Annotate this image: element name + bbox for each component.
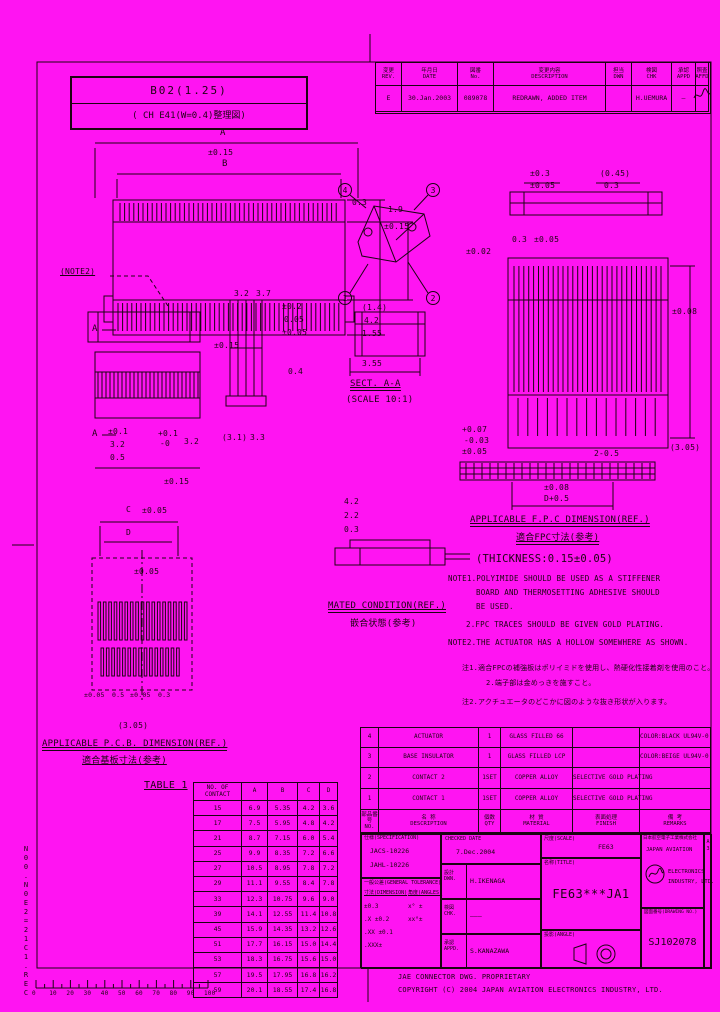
ruler-label: 30: [84, 991, 92, 997]
revision-header: 図番 No.: [458, 63, 494, 86]
drawing-number-value: SJ102078: [642, 937, 703, 948]
parts-cell: 1: [479, 728, 501, 748]
parts-cell: BASE INSULATOR: [379, 748, 479, 768]
parts-cell: 3: [361, 748, 379, 768]
dim-label: ±0.05: [130, 692, 151, 699]
table1-cell: 17.7: [242, 938, 268, 953]
table1-cell: 51: [194, 938, 242, 953]
revision-header: 年月日 DATE: [402, 63, 458, 86]
dim-label: C: [126, 506, 131, 514]
revision-value: —: [672, 86, 696, 112]
table1-cell: 7.8: [298, 862, 320, 877]
dim-label: +0.1: [158, 430, 178, 438]
parts-cell: COPPER ALLOY: [501, 768, 573, 789]
dim-label: (THICKNESS:0.15±0.05): [476, 554, 613, 565]
dim-label: 0.3: [604, 182, 619, 190]
table1-cell: 14.4: [320, 938, 338, 953]
dim-label: (3.05): [670, 444, 700, 452]
checked-date-label: CHECKED DATE: [445, 837, 481, 843]
revision-header: 照査 AFFD: [696, 63, 709, 86]
table1-cell: 7.8: [320, 877, 338, 892]
parts-cell: COLOR:BLACK UL94V-0: [640, 728, 711, 748]
table1-cell: 29: [194, 877, 242, 892]
ruler-label: 80: [170, 991, 178, 997]
dim-label: ±0.05: [530, 182, 555, 190]
dim-label: APPLICABLE P.C.B. DIMENSION(REF.): [42, 740, 227, 751]
table1-header: NO. OF CONTACT: [194, 783, 242, 801]
tolerance-box: 一般公差(GENERAL TOLERANCE) 寸法(DIMENSION) 角度…: [361, 878, 441, 969]
copyright-note: COPYRIGHT (C) 2004 JAPAN AVIATION ELECTR…: [398, 987, 663, 994]
tolerance-row: .X ±0.2xx°±: [364, 916, 440, 929]
dim-label: NOTE2.THE ACTUATOR HAS A HOLLOW SOMEWHER…: [448, 639, 688, 647]
dim-label: 3.2: [234, 290, 249, 298]
dim-label: 3.7: [256, 290, 271, 298]
parts-header: 個数 QTY: [479, 810, 501, 833]
table1-header: A: [242, 783, 268, 801]
table1-header: B: [268, 783, 298, 801]
table1-cell: 27: [194, 862, 242, 877]
contact-dimension-table: NO. OF CONTACTABCD156.95.354.23.6177.55.…: [193, 782, 338, 998]
table1-cell: 15: [194, 801, 242, 816]
dim-label: 1.55: [362, 330, 382, 338]
dim-label: 3.2: [184, 438, 199, 446]
table1-cell: 9.6: [298, 892, 320, 907]
table1-cell: 9.9: [242, 847, 268, 862]
table1-cell: 16.8: [298, 968, 320, 983]
parts-cell: [640, 789, 711, 810]
spec-value-1: JACS-10226: [370, 847, 409, 855]
parts-cell: 1SET: [479, 768, 501, 789]
approval-row: 設計 DWN.H.IKENAGA: [441, 864, 541, 899]
dim-label: 1.9: [388, 206, 403, 214]
dim-label: SECT. A-A: [350, 380, 401, 391]
approval-value: S.KANAZAWA: [470, 947, 509, 955]
table1-cell: 15.0: [320, 953, 338, 968]
third-angle-projection-icon: [570, 942, 626, 966]
table1-cell: 6.6: [320, 847, 338, 862]
table1-cell: 5.35: [268, 801, 298, 816]
dim-label: APPLICABLE F.P.C DIMENSION(REF.): [470, 516, 650, 527]
approval-label: 承認 APPD.: [444, 941, 459, 952]
dim-label: NOTE1.POLYIMIDE SHOULD BE USED AS A STIF…: [448, 575, 660, 583]
ruler-label: 60: [135, 991, 143, 997]
dim-label: 0.5: [112, 692, 124, 699]
parts-header: 表面処理 FINISH: [573, 810, 640, 833]
table1-cell: 21: [194, 831, 242, 846]
dim-label: ±0.05: [84, 692, 105, 699]
table1-cell: 15.9: [242, 923, 268, 938]
sheet-size-label: A3: [705, 839, 711, 853]
projection-label: 投影(ANGLE): [544, 933, 575, 939]
table1-cell: 17: [194, 816, 242, 831]
tolerance-row: ±0.3x° ±: [364, 903, 440, 916]
dim-label: 0.05: [284, 316, 304, 324]
dim-label: (SCALE 10:1): [346, 396, 413, 405]
dim-label: D+0.5: [544, 495, 569, 503]
dim-label: 2.FPC TRACES SHOULD BE GIVEN GOLD PLATIN…: [466, 621, 664, 629]
tolerance-row: .XXX±: [364, 942, 440, 955]
table1-cell: 18.55: [268, 983, 298, 998]
table1-cell: 19.5: [242, 968, 268, 983]
title-label: 名称(TITLE): [544, 861, 575, 867]
scale-cell: 尺度(SCALE) FE63: [541, 834, 641, 858]
table1-cell: 8.7: [242, 831, 268, 846]
dim-label: 4.2: [344, 498, 359, 506]
corner-stamp-line2: ( CH E41(W=0.4)整理図): [72, 104, 306, 130]
parts-cell: 1SET: [479, 789, 501, 810]
ruler-label: 90: [187, 991, 195, 997]
drawing-number-label: 図面番号(DRAWING NO.): [644, 911, 697, 916]
dim-label: 0.3: [158, 692, 170, 699]
tolerance-dim-value: ±0.3: [364, 903, 408, 916]
revision-value: 30.Jan.2003: [402, 86, 458, 112]
table1-cell: 20.1: [242, 983, 268, 998]
revision-header: 変更 REV.: [376, 63, 402, 86]
parts-list-table: 4ACTUATOR1GLASS FILLED 66COLOR:BLACK UL9…: [360, 727, 711, 833]
dim-label: ±0.08: [672, 308, 697, 316]
corner-stamp-line1: B02(1.25): [72, 78, 306, 104]
ruler-label: 20: [66, 991, 74, 997]
table1-cell: 4.2: [320, 816, 338, 831]
dim-label: TABLE 1: [144, 781, 188, 792]
dim-label: 0.4: [288, 368, 303, 376]
dim-label: 2.端子部は金めっきを施すこと。: [486, 680, 596, 687]
table1-cell: 16.8: [320, 983, 338, 998]
dim-label: (3.1): [222, 434, 247, 442]
drawing-number-cell: 図面番号(DRAWING NO.) SJ102078: [641, 908, 704, 969]
pcb-footprint-view: [92, 522, 192, 700]
dim-label: ±0.05: [282, 329, 307, 337]
dim-label: D: [126, 529, 131, 537]
dim-label: 3.2: [110, 441, 125, 449]
ruler-label: 0: [32, 991, 36, 997]
approval-value: ———: [470, 912, 482, 920]
dim-label: A: [220, 129, 226, 138]
approval-row: 検図 CHK.———: [441, 899, 541, 934]
parts-cell: 1: [479, 748, 501, 768]
table1-cell: 9.55: [268, 877, 298, 892]
dim-label: ±0.1: [108, 428, 128, 436]
dim-label: BE USED.: [476, 603, 514, 611]
ruler-label: 70: [152, 991, 160, 997]
table1-cell: 8.4: [298, 877, 320, 892]
table1-cell: 12.6: [320, 923, 338, 938]
dim-label: A: [92, 430, 98, 439]
table1-cell: 18.3: [242, 953, 268, 968]
dim-label: ±0.05: [134, 568, 159, 576]
table1-cell: 7.15: [268, 831, 298, 846]
table1-cell: 11.4: [298, 907, 320, 922]
dim-label: 適合基板寸法(参考): [82, 757, 167, 766]
parts-cell: ACTUATOR: [379, 728, 479, 748]
approval-value: H.IKENAGA: [470, 877, 505, 885]
company-cell: 日本航空電子工業株式会社 JAPAN AVIATION ELECTRONICS …: [641, 834, 704, 908]
table1-cell: 5.4: [320, 831, 338, 846]
parts-cell: [573, 728, 640, 748]
table1-cell: 10.5: [242, 862, 268, 877]
parts-cell: GLASS FILLED 66: [501, 728, 573, 748]
ruler-label: 50: [118, 991, 126, 997]
parts-cell: COLOR:BEIGE UL94V-0: [640, 748, 711, 768]
table1-cell: 15.6: [298, 953, 320, 968]
jae-logo: [644, 863, 666, 885]
table1-cell: 39: [194, 907, 242, 922]
revision-header: 担当 DWN: [606, 63, 632, 86]
ruler-label: 100: [204, 991, 215, 997]
table1-cell: 17.95: [268, 968, 298, 983]
table1-cell: 6.0: [298, 831, 320, 846]
table1-cell: 5.95: [268, 816, 298, 831]
table1-cell: 12.55: [268, 907, 298, 922]
revision-value: E: [376, 86, 402, 112]
table1-cell: 17.4: [298, 983, 320, 998]
dim-label: -0: [160, 440, 170, 448]
table1-cell: 8.95: [268, 862, 298, 877]
corner-stamp-box: B02(1.25) ( CH E41(W=0.4)整理図): [70, 76, 308, 130]
part-number-title: FE63***JA1: [542, 887, 640, 901]
parts-header: 名 称 DESCRIPTION: [379, 810, 479, 833]
revision-header: 承認 APPD: [672, 63, 696, 86]
tolerance-ang-heading: 角度(ANGLES): [408, 891, 442, 897]
revision-value: [696, 86, 709, 112]
tolerance-rows: ±0.3x° ±.X ±0.2xx°±.XX ±0.1.XXX±: [364, 903, 440, 955]
revision-value: 089078: [458, 86, 494, 112]
side-view: [226, 300, 266, 406]
table1-header: D: [320, 783, 338, 801]
table1-cell: 14.1: [242, 907, 268, 922]
revision-header: 検図 CHK: [632, 63, 672, 86]
side-file-code: N00.N0E2=21C1.REC: [22, 845, 30, 995]
dim-label: ±0.15: [164, 478, 189, 486]
table1-cell: 25: [194, 847, 242, 862]
table1-cell: 11.1: [242, 877, 268, 892]
parts-header: 備 考 REMARKS: [640, 810, 711, 833]
table1-cell: 7.2: [298, 847, 320, 862]
dim-label: ±0.05: [142, 507, 167, 515]
tolerance-heading: 一般公差(GENERAL TOLERANCE): [364, 881, 441, 887]
tolerance-ang-value: xx°±: [408, 916, 422, 929]
revision-table: 変更 REV.年月日 DATE図番 No.変更内容 DESCRIPTION担当 …: [375, 62, 711, 114]
tolerance-dim-value: .XXX±: [364, 942, 408, 955]
approval-label: 検図 CHK.: [444, 906, 456, 917]
parts-cell: 1: [361, 789, 379, 810]
dim-label: 3.55: [362, 360, 382, 368]
dim-label: 0.5: [110, 454, 125, 462]
part-balloon: 4: [338, 183, 352, 197]
table1-cell: 16.2: [320, 968, 338, 983]
dim-label: ±0.2: [282, 303, 302, 311]
tolerance-dim-value: .X ±0.2: [364, 916, 408, 929]
checked-date-cell: CHECKED DATE 7.Dec.2004: [441, 834, 541, 864]
dim-label: ±0.15: [208, 149, 233, 157]
dim-label: A: [92, 325, 98, 334]
dim-label: 4.2: [364, 317, 379, 325]
table1-cell: 59: [194, 983, 242, 998]
parts-cell: CONTACT 1: [379, 789, 479, 810]
dim-label: 3.3: [250, 434, 265, 442]
table1-cell: 57: [194, 968, 242, 983]
parts-cell: 4: [361, 728, 379, 748]
title-cell: 名称(TITLE) FE63***JA1: [541, 858, 641, 930]
revision-value: REDRAWN, ADDED ITEM: [494, 86, 606, 112]
approval-label: 設計 DWN.: [444, 871, 456, 882]
dim-label: +0.07: [462, 426, 487, 434]
table1-header: C: [298, 783, 320, 801]
drawing-sheet: B02(1.25) ( CH E41(W=0.4)整理図) 変更 REV.年月日…: [0, 0, 720, 1012]
table1-cell: 4.2: [298, 801, 320, 816]
table1-cell: 10.75: [268, 892, 298, 907]
table1-cell: 8.35: [268, 847, 298, 862]
dim-label: -0.03: [464, 437, 489, 445]
dim-label: ±0.05: [534, 236, 559, 244]
dim-label: ±0.08: [544, 484, 569, 492]
proprietary-note: JAE CONNECTOR DWG. PROPRIETARY: [398, 974, 530, 981]
parts-cell: [573, 748, 640, 768]
dim-label: ±0.05: [462, 448, 487, 456]
spec-label: 仕様(SPECIFICATION): [364, 836, 419, 842]
dim-label: (0.45): [600, 170, 630, 178]
sheet-size-strip: A3: [704, 834, 712, 969]
part-balloon: 2: [426, 291, 440, 305]
dim-label: 適合FPC寸法(参考): [516, 534, 599, 545]
parts-header: 材 質 MATERIAL: [501, 810, 573, 833]
tolerance-dim-heading: 寸法(DIMENSION): [364, 891, 407, 897]
dim-label: ±0.3: [530, 170, 550, 178]
dim-label: 2.2: [344, 512, 359, 520]
dim-label: B: [222, 160, 228, 169]
scale-label: 尺度(SCALE): [544, 837, 575, 843]
dim-label: (1.4): [362, 304, 387, 312]
table1-cell: 53: [194, 953, 242, 968]
table1-cell: 45: [194, 923, 242, 938]
table1-cell: 14.35: [268, 923, 298, 938]
table1-cell: 4.8: [298, 816, 320, 831]
company-name-en1: JAPAN AVIATION: [646, 847, 692, 853]
part-balloon: 1: [338, 291, 352, 305]
table1-cell: 6.9: [242, 801, 268, 816]
projection-cell: 投影(ANGLE): [541, 930, 641, 969]
dim-label: 0.3: [344, 526, 359, 534]
part-balloon: 3: [426, 183, 440, 197]
parts-cell: SELECTIVE GOLD PLATING: [573, 789, 640, 810]
dim-label: MATED CONDITION(REF.): [328, 602, 446, 613]
company-name-en2: ELECTRONICS: [668, 869, 704, 875]
tolerance-dim-value: .XX ±0.1: [364, 929, 408, 942]
parts-header: 部品番号 NO.: [361, 810, 379, 833]
table1-cell: 7.2: [320, 862, 338, 877]
revision-value: [606, 86, 632, 112]
parts-cell: COPPER ALLOY: [501, 789, 573, 810]
spec-value-2: JAHL-10226: [370, 861, 409, 869]
dim-label: ±0.15: [384, 223, 409, 231]
dim-label: BOARD AND THERMOSETTING ADHESIVE SHOULD: [476, 589, 660, 597]
table1-cell: 13.2: [298, 923, 320, 938]
parts-cell: [640, 768, 711, 789]
contact-detail-view: [508, 183, 695, 448]
dim-label: (NOTE2): [60, 268, 95, 276]
table1-cell: 15.0: [298, 938, 320, 953]
parts-cell: SELECTIVE GOLD PLATING: [573, 768, 640, 789]
spec-box: 仕様(SPECIFICATION) JACS-10226 JAHL-10226: [361, 834, 441, 878]
dim-label: 注2.アクチュエータのどこかに図のような抜き形状が入ります。: [462, 699, 671, 706]
scale-ruler: [36, 980, 208, 988]
table1-cell: 16.15: [268, 938, 298, 953]
dim-label: 0.3: [352, 199, 367, 207]
dim-label: ±0.15: [214, 342, 239, 350]
dim-label: 2-0.5: [594, 450, 619, 458]
table1-cell: 7.5: [242, 816, 268, 831]
dim-label: 0.3: [512, 236, 527, 244]
approval-row: 承認 APPD.S.KANAZAWA: [441, 934, 541, 969]
dim-label: ±0.02: [466, 248, 491, 256]
revision-header: 変更内容 DESCRIPTION: [494, 63, 606, 86]
title-block: 仕様(SPECIFICATION) JACS-10226 JAHL-10226 …: [360, 833, 711, 968]
dim-label: 注1.適合FPCの補強板はポリイミドを使用し、熱硬化性接着剤を使用のこと。: [462, 665, 714, 672]
company-name-jp: 日本航空電子工業株式会社: [643, 837, 697, 842]
dim-label: (3.05): [118, 722, 148, 730]
ruler-label: 10: [49, 991, 57, 997]
parts-cell: 2: [361, 768, 379, 789]
table1-cell: 10.8: [320, 907, 338, 922]
table1-cell: 16.75: [268, 953, 298, 968]
tolerance-ang-value: x° ±: [408, 903, 422, 916]
scale-value: FE63: [598, 843, 614, 851]
checked-date-value: 7.Dec.2004: [456, 848, 495, 856]
table1-cell: 12.3: [242, 892, 268, 907]
parts-cell: GLASS FILLED LCP: [501, 748, 573, 768]
table1-cell: 3.6: [320, 801, 338, 816]
parts-cell: CONTACT 2: [379, 768, 479, 789]
mated-condition-view: [335, 540, 470, 565]
dim-label: 嵌合状態(参考): [350, 620, 416, 629]
table1-cell: 9.0: [320, 892, 338, 907]
table1-cell: 33: [194, 892, 242, 907]
tolerance-row: .XX ±0.1: [364, 929, 440, 942]
ruler-label: 40: [101, 991, 109, 997]
revision-value: H.UEMURA: [632, 86, 672, 112]
